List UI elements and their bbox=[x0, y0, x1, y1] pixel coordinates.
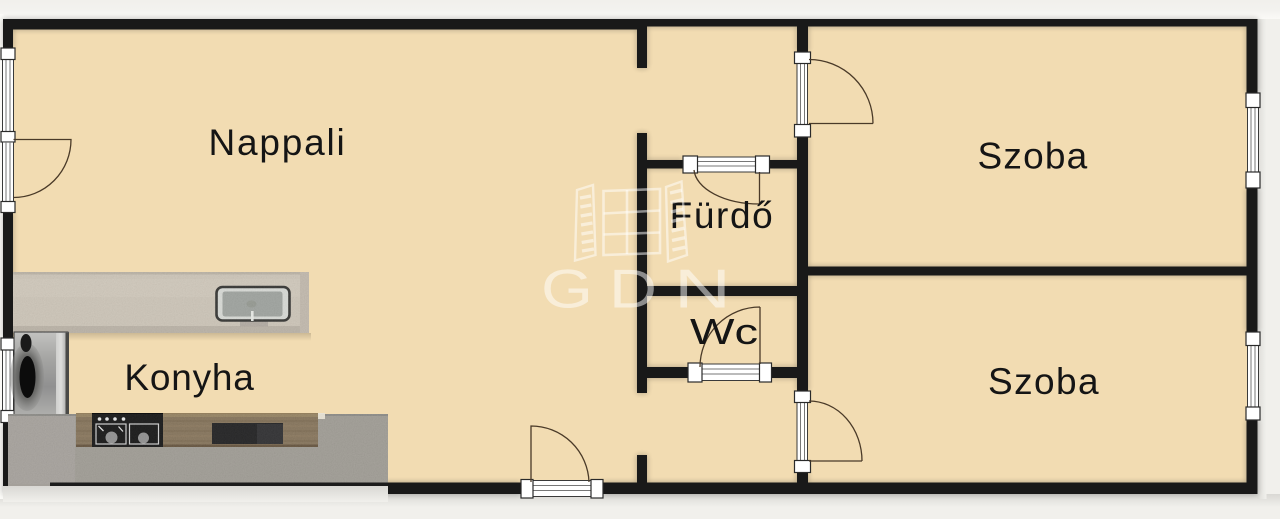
svg-text:Szoba: Szoba bbox=[988, 361, 1100, 402]
svg-text:Szoba: Szoba bbox=[978, 136, 1089, 177]
svg-text:N: N bbox=[674, 258, 731, 320]
svg-text:D: D bbox=[609, 258, 657, 320]
svg-text:Nappali: Nappali bbox=[208, 122, 346, 163]
svg-text:G: G bbox=[541, 258, 593, 320]
svg-text:Konyha: Konyha bbox=[124, 357, 254, 398]
